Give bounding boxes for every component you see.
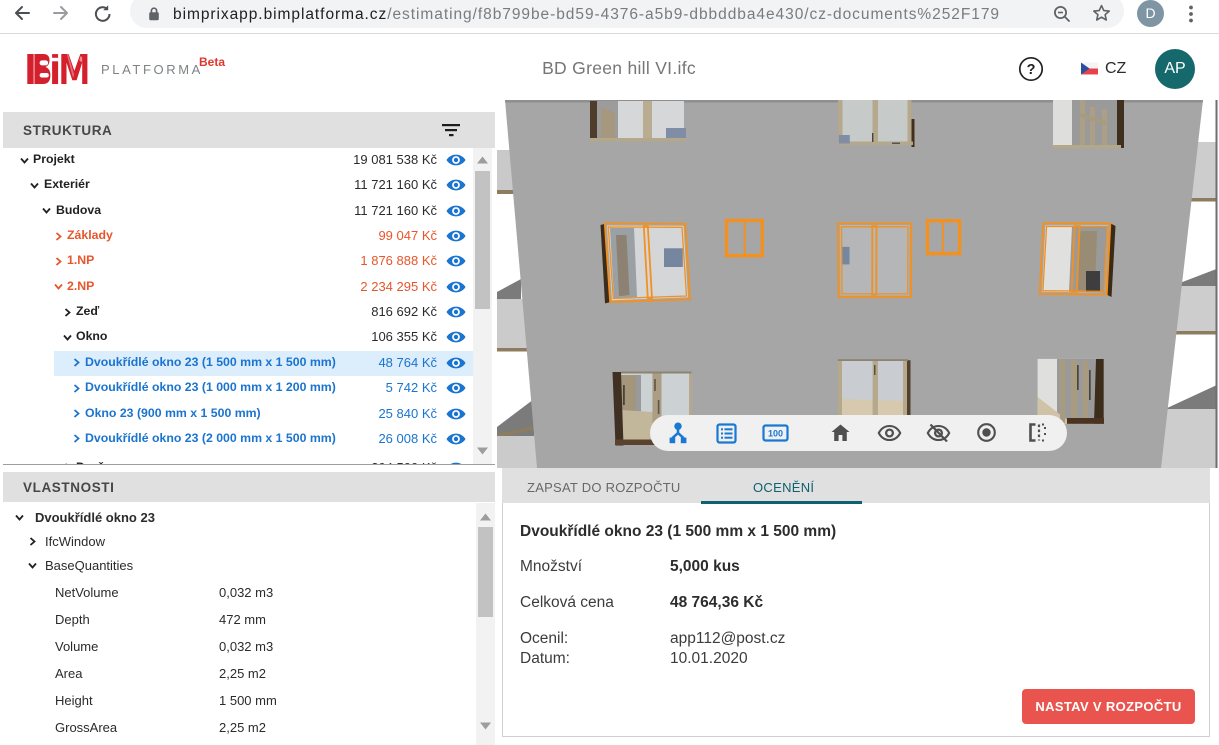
svg-text:?: ? (1027, 62, 1036, 78)
svg-text:100: 100 (768, 429, 783, 439)
